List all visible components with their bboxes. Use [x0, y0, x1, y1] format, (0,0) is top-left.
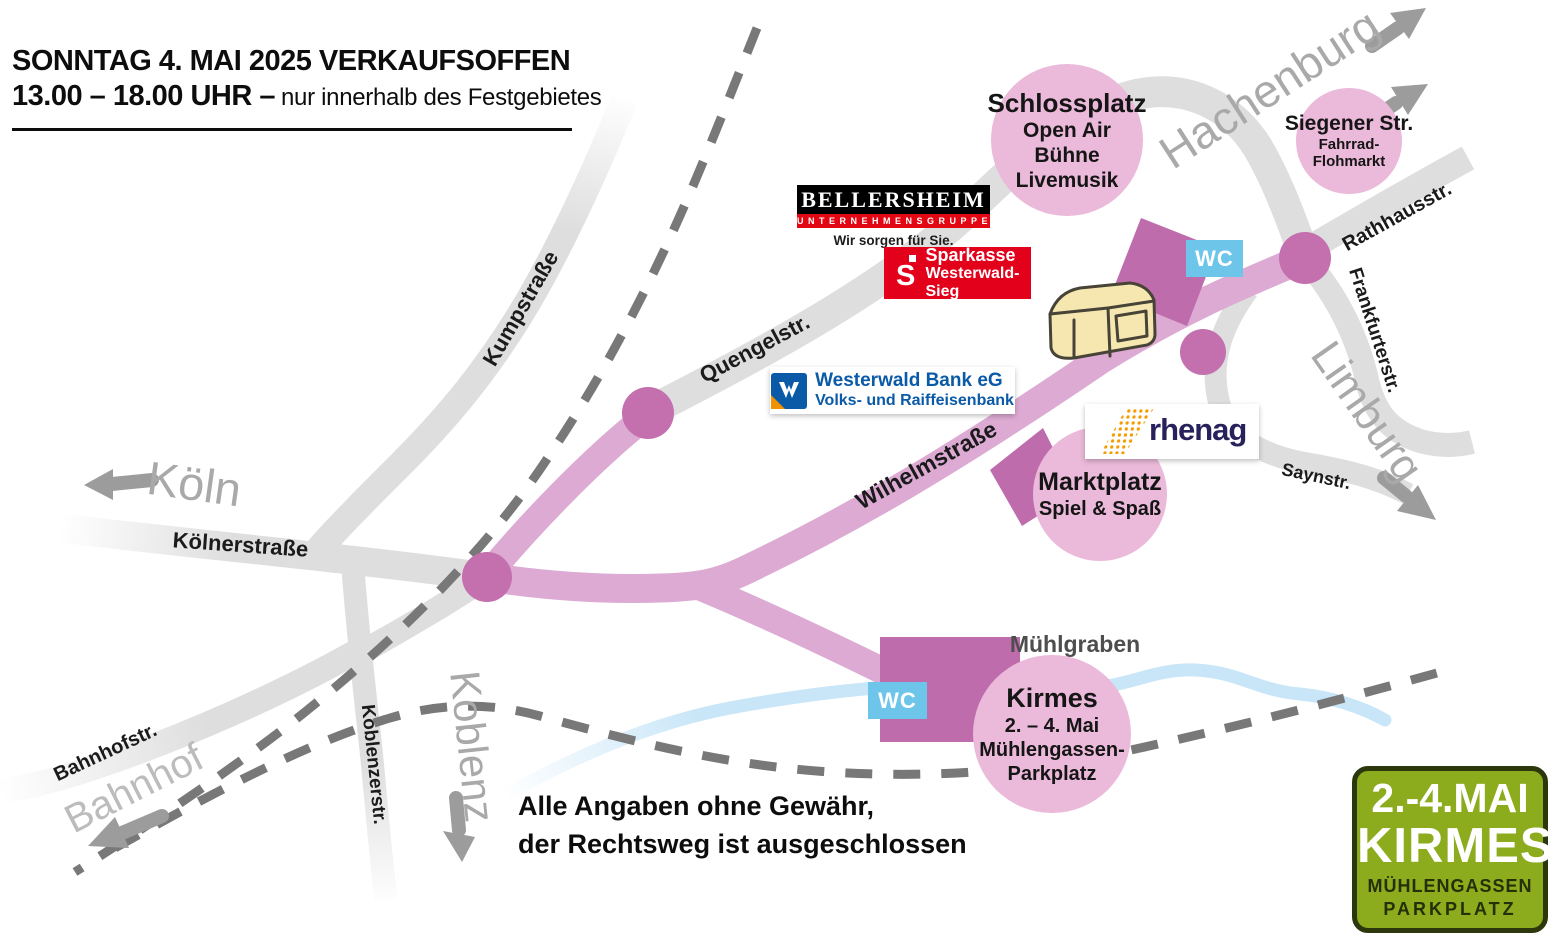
header-line1: SONNTAG 4. MAI 2025 VERKAUFSOFFEN — [12, 44, 602, 78]
label-muehlgraben: Mühlgraben — [1010, 631, 1140, 657]
disclaimer-line2: der Rechtsweg ist ausgeschlossen — [518, 825, 967, 863]
label-wilhelmstrasse: Wilhelmstraße — [851, 416, 1001, 515]
header-line2: 13.00 – 18.00 UHR –nur innerhalb des Fes… — [12, 78, 602, 116]
badge-title: KIRMES — [1357, 821, 1543, 871]
kirmes-badge: 2.-4.MAI KIRMES MÜHLENGASSEN PARKPLATZ — [1352, 766, 1548, 933]
venue-title: Kirmes — [1006, 683, 1098, 714]
venue-subtitle: Flohmarkt — [1313, 153, 1386, 170]
wbank-text: Westerwald Bank eG Volks- und Raiffeisen… — [815, 371, 1014, 409]
logo-bellersheim: BELLERSHEIM UNTERNEHMENSGRUPPE Wir sorge… — [797, 185, 990, 248]
node-quengelstr — [622, 387, 674, 439]
wc-box-kirmes: WC — [868, 682, 927, 719]
header: SONNTAG 4. MAI 2025 VERKAUFSOFFEN 13.00 … — [12, 44, 602, 131]
wbank-line2: Volks- und Raiffeisenbank — [815, 392, 1014, 410]
venue-subtitle: Parkplatz — [1008, 762, 1097, 786]
venue-subtitle: Mühlengassen- — [979, 738, 1125, 762]
sparkasse-line1: Sparkasse — [925, 245, 1031, 265]
event-map: Kumpstraße Quengelstr. Kölnerstraße Bahn… — [0, 0, 1555, 941]
rhenag-fan-icon — [1090, 408, 1154, 454]
venue-subtitle: Fahrrad- — [1319, 136, 1380, 153]
koeln-arrow — [84, 469, 152, 500]
venue-title: Siegener Str. — [1285, 112, 1413, 136]
sparkasse-s-icon: S — [896, 254, 917, 292]
sparkasse-line2: Westerwald-Sieg — [925, 265, 1031, 301]
logo-rhenag: rhenag — [1085, 404, 1259, 459]
wbank-line1: Westerwald Bank eG — [815, 371, 1014, 392]
wc-box-center: WC — [1186, 240, 1243, 277]
venue-subtitle: Spiel & Spaß — [1039, 497, 1161, 521]
node-saynstr — [1180, 329, 1226, 375]
badge-location1: MÜHLENGASSEN — [1357, 875, 1543, 898]
logo-sparkasse: S Sparkasse Westerwald-Sieg — [884, 247, 1031, 299]
sparkasse-text: Sparkasse Westerwald-Sieg — [925, 245, 1031, 301]
node-rathhausstr — [1279, 232, 1331, 284]
building-icon — [1050, 283, 1155, 358]
disclaimer-line1: Alle Angaben ohne Gewähr, — [518, 787, 967, 825]
venue-title: Schlossplatz — [988, 88, 1147, 118]
bellersheim-name: BELLERSHEIM — [797, 185, 990, 214]
node-koelnerstrasse — [462, 552, 512, 602]
venue-siegener-str: Siegener Str. Fahrrad- Flohmarkt — [1296, 88, 1402, 194]
label-koeln: Köln — [144, 451, 245, 517]
festival-road-node-link — [490, 415, 648, 572]
sparkasse-dot-icon — [909, 255, 916, 262]
sparkasse-s: S — [896, 260, 915, 292]
rhenag-name: rhenag — [1149, 412, 1246, 448]
header-rule — [12, 128, 572, 131]
header-note: nur innerhalb des Festgebietes — [281, 84, 602, 111]
venue-kirmes: Kirmes 2. – 4. Mai Mühlengassen- Parkpla… — [973, 655, 1131, 813]
venue-title: Marktplatz — [1038, 468, 1162, 497]
logo-westerwald-bank: Westerwald Bank eG Volks- und Raiffeisen… — [770, 367, 1015, 414]
venue-subtitle: Open Air Bühne — [991, 118, 1143, 168]
festival-road-kirmes-branch — [700, 587, 885, 672]
disclaimer: Alle Angaben ohne Gewähr, der Rechtsweg … — [518, 787, 967, 863]
header-hours: 13.00 – 18.00 UHR – — [12, 80, 275, 112]
vr-bank-icon — [771, 373, 807, 409]
bellersheim-sub: UNTERNEHMENSGRUPPE — [797, 214, 990, 228]
badge-date: 2.-4.MAI — [1357, 775, 1543, 821]
badge-location2: PARKPLATZ — [1357, 898, 1543, 920]
venue-schlossplatz: Schlossplatz Open Air Bühne Livemusik — [991, 64, 1143, 216]
venue-subtitle: Livemusik — [1016, 168, 1119, 193]
venue-subtitle: 2. – 4. Mai — [1005, 714, 1100, 738]
label-kumpstrasse: Kumpstraße — [478, 246, 564, 370]
